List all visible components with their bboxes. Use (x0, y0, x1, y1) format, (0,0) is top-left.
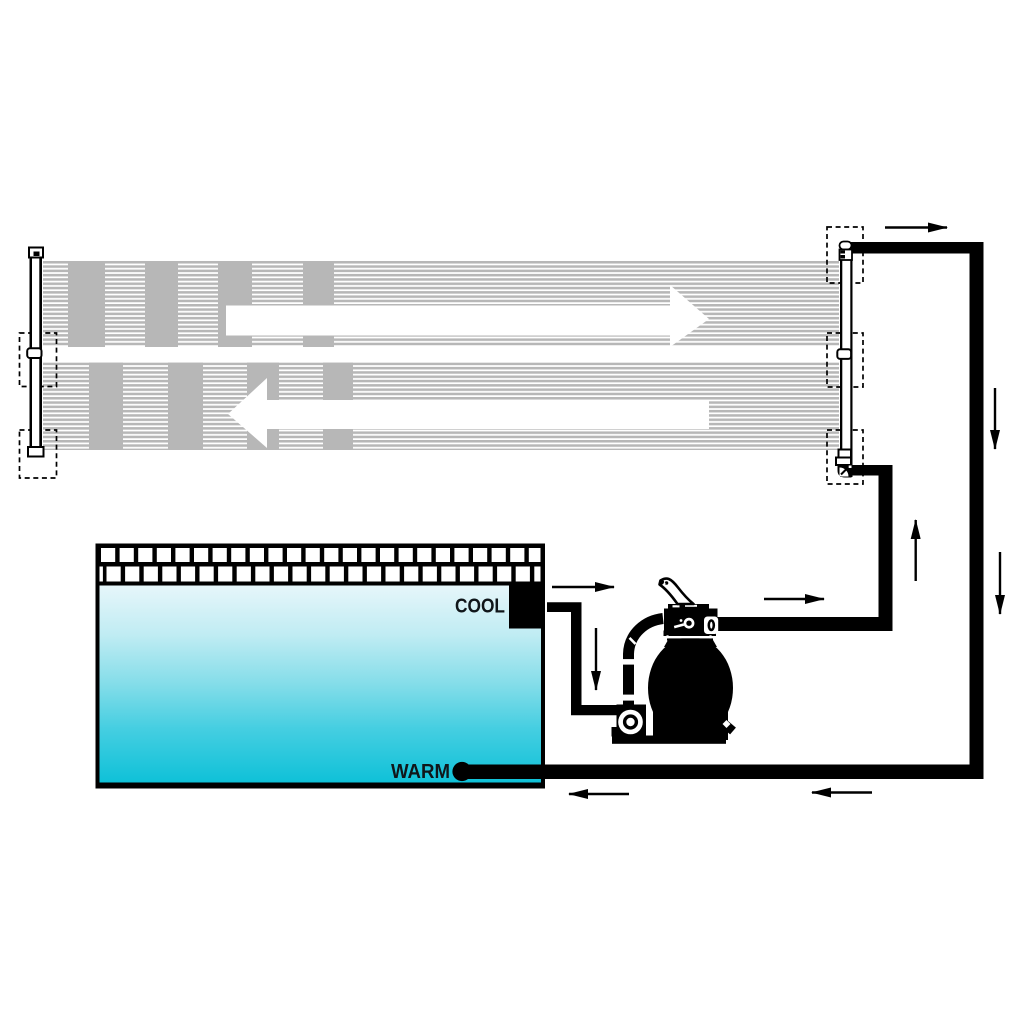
svg-text:WARM: WARM (391, 761, 450, 783)
svg-text:COOL: COOL (455, 596, 505, 618)
